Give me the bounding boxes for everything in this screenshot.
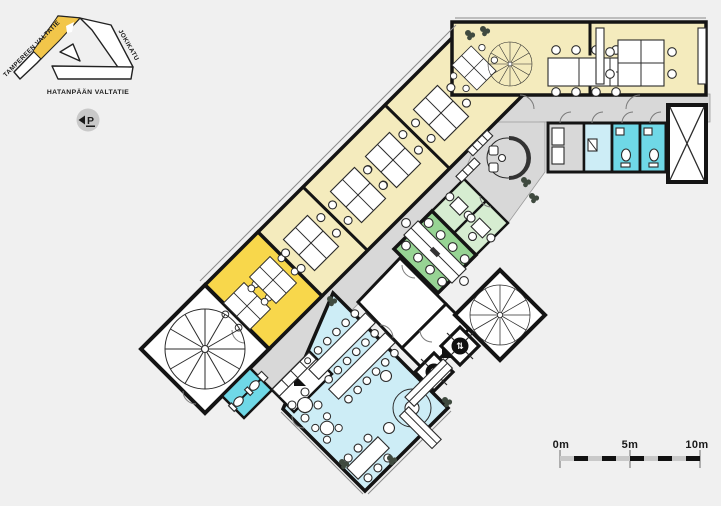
- spiral-stair-east: [470, 285, 530, 345]
- spiral-stair-southwest: [165, 309, 245, 389]
- elevator-updown-icon: ⇅: [456, 342, 464, 352]
- site-building-bottom: [52, 66, 133, 79]
- street-label-hatanpaan: HATANPÄÄN VALTATIE: [47, 88, 129, 96]
- parking-icon: P: [77, 109, 100, 132]
- floor-plan-canvas: ⇅ ⇅: [0, 0, 721, 506]
- scale-label-0m: 0m: [553, 439, 570, 451]
- parking-underline: [86, 126, 95, 128]
- scale-label-10m: 10m: [685, 439, 708, 451]
- scale-label-5m: 5m: [622, 439, 639, 451]
- parking-letter: P: [87, 115, 94, 127]
- curved-stair: [488, 42, 532, 86]
- floor-plan-page: ⇅ ⇅: [0, 0, 721, 506]
